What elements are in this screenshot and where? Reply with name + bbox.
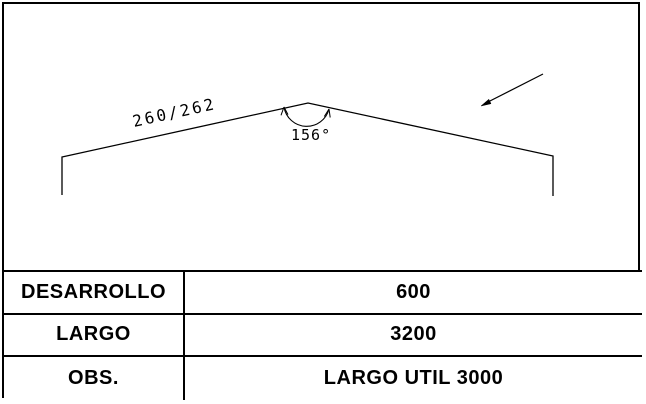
angle-value-label: 156° — [291, 126, 331, 144]
drawing-sheet: 260/262 156° DESARROLLO 600 LARGO 3200 O… — [0, 0, 646, 404]
table-row-obs-value: LARGO UTIL 3000 — [185, 357, 642, 400]
table-row-desarrollo-label: DESARROLLO — [4, 272, 185, 315]
angle-arc — [284, 107, 329, 126]
direction-arrow-head-icon — [481, 99, 491, 106]
spec-table: DESARROLLO 600 LARGO 3200 OBS. LARGO UTI… — [4, 270, 642, 400]
table-row-largo-label: LARGO — [4, 315, 185, 358]
table-row-largo-value: 3200 — [185, 315, 642, 358]
table-row-desarrollo-value: 600 — [185, 272, 642, 315]
direction-arrow-line — [484, 74, 543, 104]
table-row-obs-label: OBS. — [4, 357, 185, 400]
